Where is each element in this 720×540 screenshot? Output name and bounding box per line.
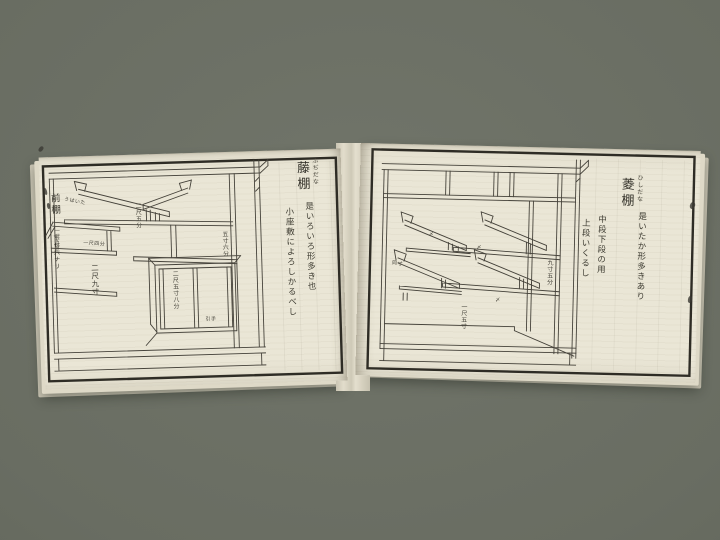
left-title-furigana: ふぢだな bbox=[311, 157, 318, 185]
right-page-title: 菱棚 bbox=[619, 177, 633, 209]
dim-label-right-depth: 五寸六分 bbox=[221, 231, 228, 257]
dim-label-cabinet-width: 二尺五寸八分 bbox=[171, 270, 178, 309]
dim-label-mid-shelf: 二尺五分 bbox=[134, 203, 141, 229]
hishidana-shelf-diagram bbox=[355, 143, 700, 383]
dim-label-right-depth: 九寸五分 bbox=[545, 259, 552, 285]
pin-mark-3: 〆 bbox=[495, 296, 501, 303]
right-description-col1: 是いたか形多きあり bbox=[635, 212, 646, 302]
left-margin-title: 前棚 bbox=[49, 193, 61, 216]
pin-mark-1: 〆 bbox=[429, 231, 435, 238]
right-description-col2: 中段下段の用 bbox=[596, 215, 606, 275]
left-page-title: 藤棚 bbox=[295, 161, 309, 193]
dim-label-bottom-width: 一尺五寸 bbox=[459, 303, 466, 329]
pin-mark-2: 〆 bbox=[476, 244, 482, 251]
photo-of-open-woodblock-book: 前棚 下セ六ナリ 藤棚 ふぢだな 是いろいろ形多き也 小座敷によろしかるべし う… bbox=[0, 0, 720, 540]
left-description-col1: 是いろいろ形多き也 bbox=[304, 201, 315, 291]
dim-label-left-depth: 一尺五寸 bbox=[54, 228, 60, 250]
binding-mark bbox=[38, 145, 45, 152]
right-description-col3: 上段いくるし bbox=[580, 218, 590, 278]
dim-label-height: 二尺九寸 bbox=[91, 264, 99, 296]
dim-label-door-pull: 引手 bbox=[205, 315, 216, 322]
right-title-furigana: ひしだな bbox=[635, 175, 642, 203]
left-page: 前棚 下セ六ナリ 藤棚 ふぢだな 是いろいろ形多き也 小座敷によろしかるべし う… bbox=[39, 149, 348, 390]
right-page: 菱棚 ひしだな 是いたか形多きあり 中段下段の用 上段いくるし 同寸 九寸五分 … bbox=[355, 143, 700, 383]
